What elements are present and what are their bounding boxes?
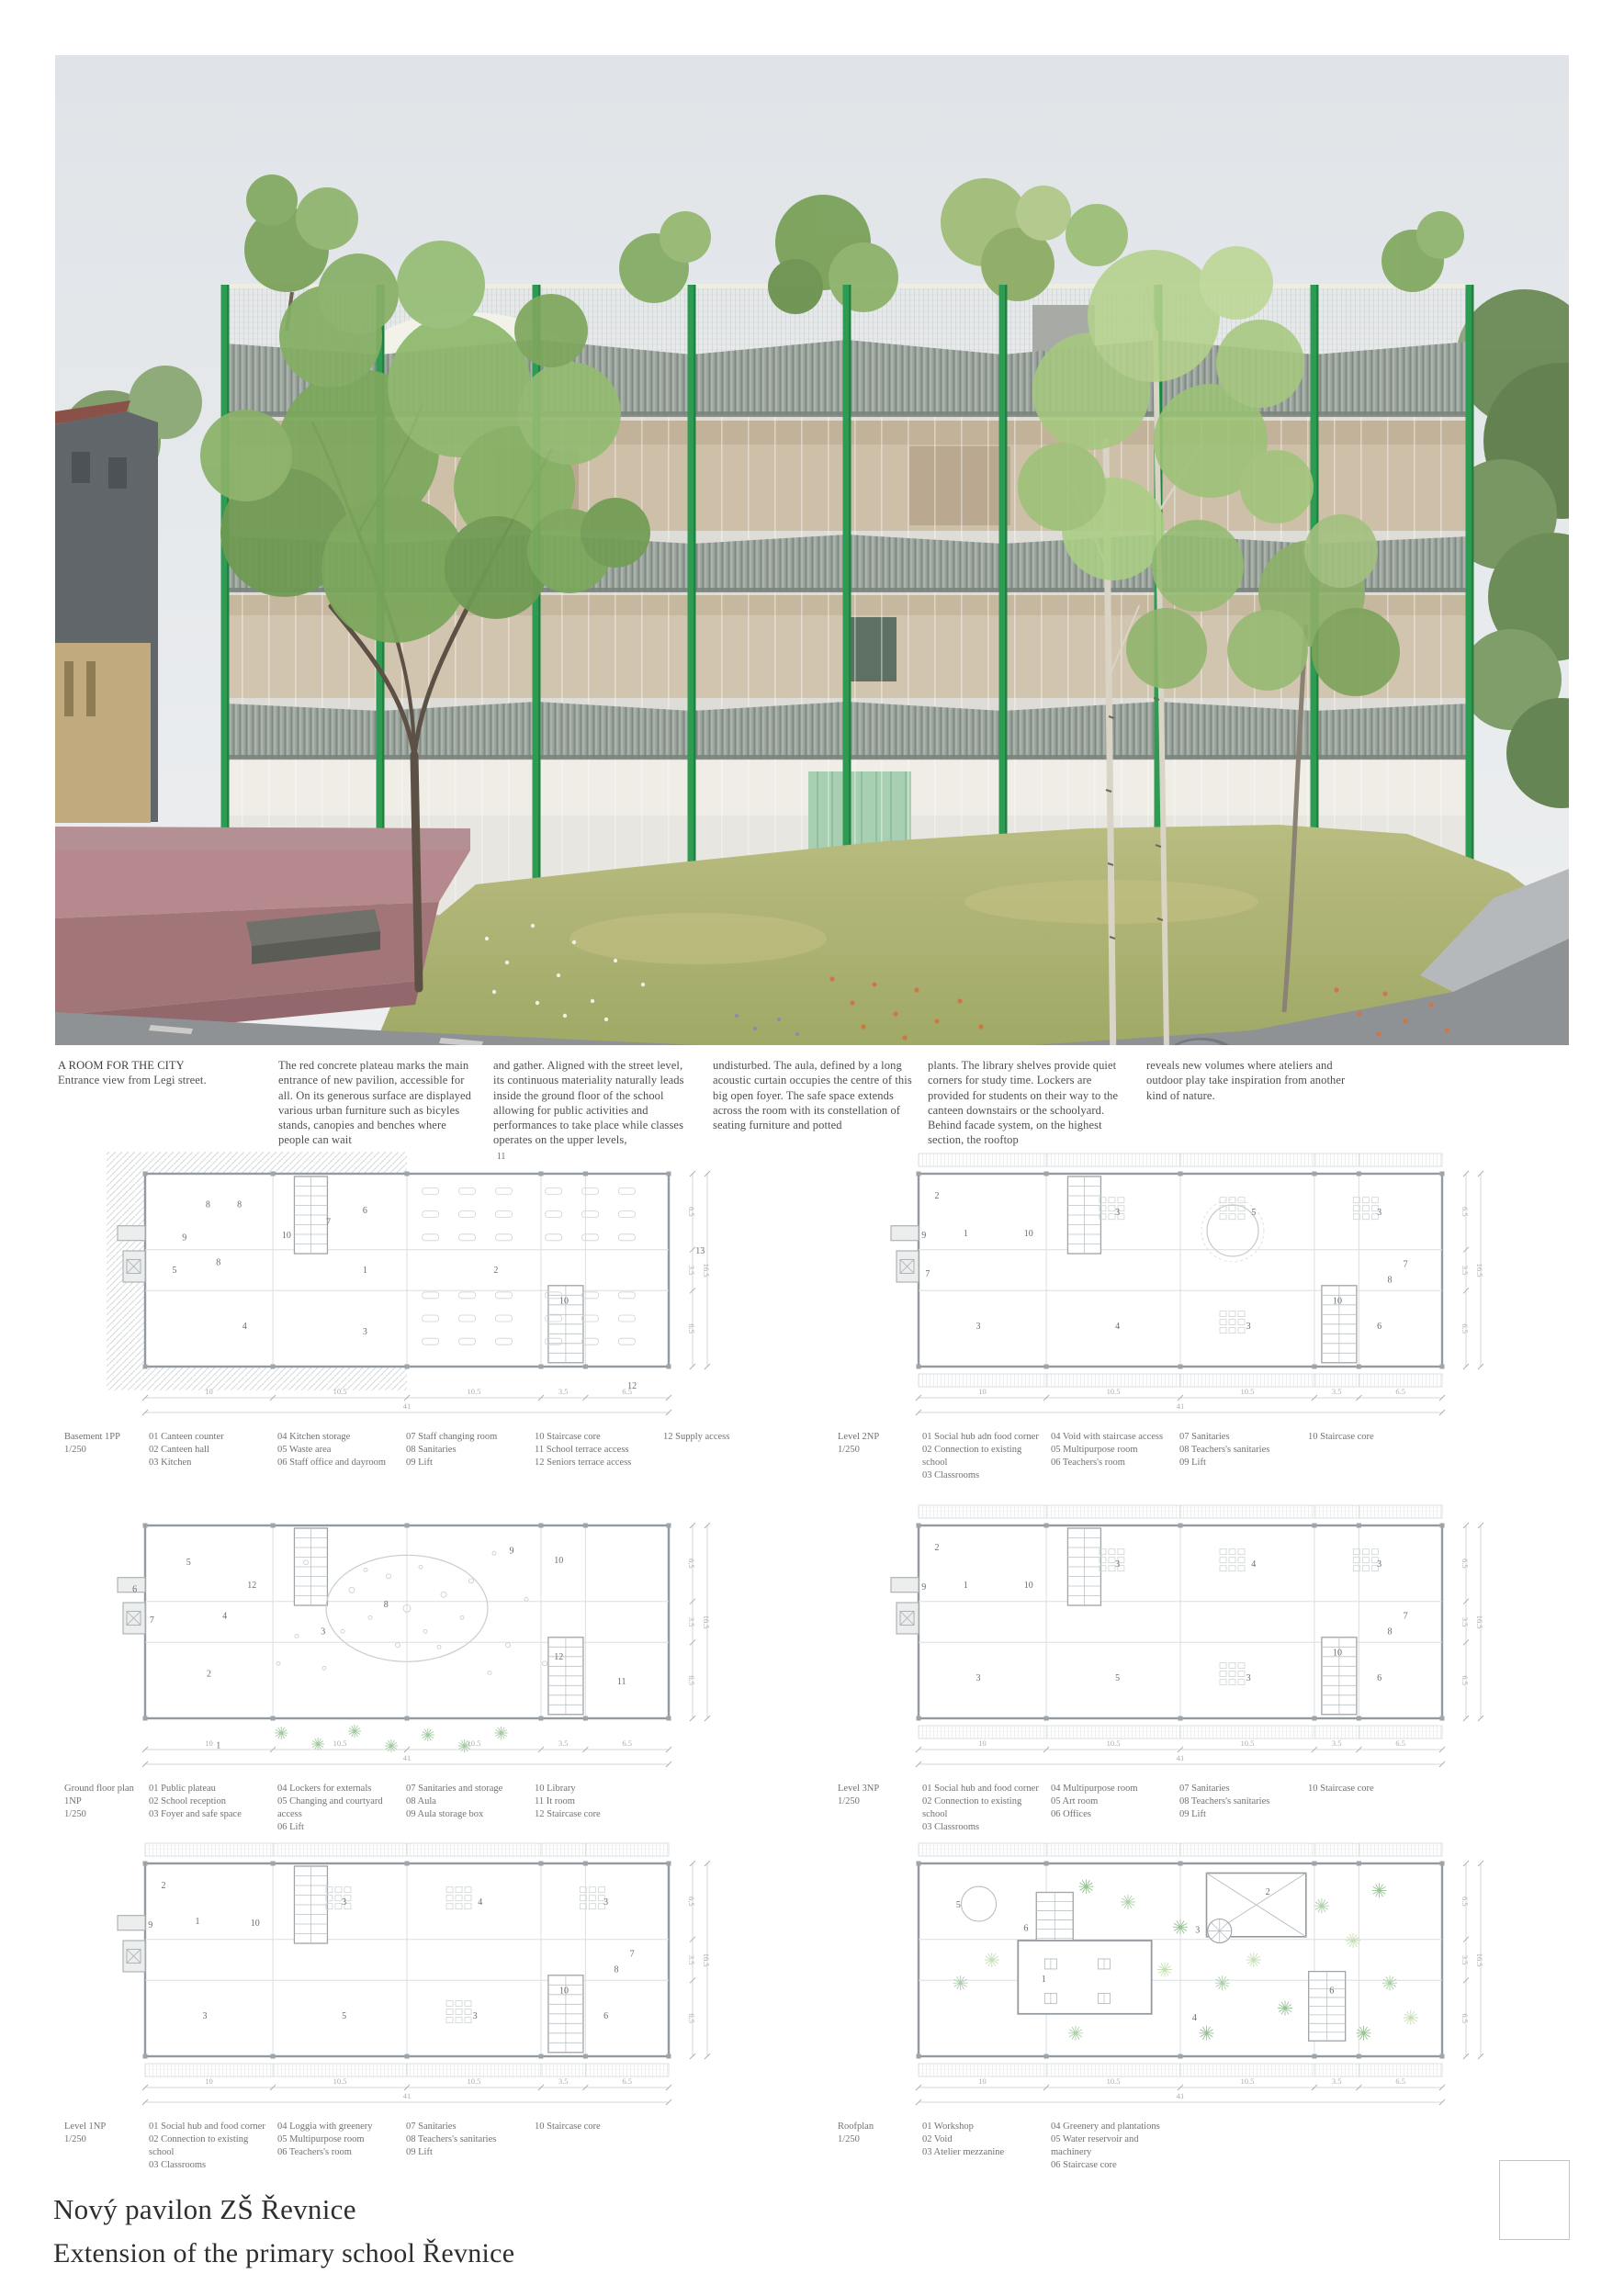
plan-legend: Basement 1PP 1/250 01 Canteen counter02 …: [64, 1431, 799, 1469]
svg-text:8: 8: [206, 1200, 210, 1210]
legend-column: 10 Library11 It room12 Staircase core: [535, 1783, 663, 1833]
legend-item: 08 Teachers's sanitaries: [406, 2133, 529, 2146]
svg-text:10: 10: [1024, 1581, 1033, 1591]
svg-text:6: 6: [363, 1206, 367, 1216]
legend-column: 07 Sanitaries and storage08 Aula09 Aula …: [406, 1783, 535, 1833]
plan-scale: 1/250: [64, 1808, 149, 1821]
legend-column: 01 Canteen counter02 Canteen hall03 Kitc…: [149, 1431, 277, 1469]
svg-text:2: 2: [1266, 1887, 1270, 1897]
svg-text:10: 10: [205, 2077, 213, 2086]
svg-text:16.5: 16.5: [702, 1264, 711, 1277]
plan-label: Level 3NP: [838, 1783, 922, 1795]
legend-item: 12 Seniors terrace access: [535, 1457, 658, 1469]
plan-scale: 1/250: [64, 1444, 149, 1457]
svg-text:4: 4: [1115, 1322, 1120, 1332]
floor-plan-drawing: 1010.510.53.56.5416.53.56.516.5567124238…: [64, 1503, 799, 1775]
svg-text:10: 10: [205, 1739, 213, 1748]
svg-text:6.5: 6.5: [687, 1896, 696, 1907]
plan-legend: Roofplan 1/250 01 Workshop02 Void03 Atel…: [838, 2121, 1573, 2171]
existing-building: [55, 400, 158, 823]
svg-text:9: 9: [148, 1920, 152, 1930]
svg-text:6: 6: [1377, 1322, 1382, 1332]
svg-text:4: 4: [242, 1322, 247, 1332]
legend-item: 06 Teachers's room: [1051, 1457, 1174, 1469]
svg-text:41: 41: [403, 2091, 412, 2100]
svg-text:12: 12: [247, 1581, 256, 1591]
legend-item: 03 Foyer and safe space: [149, 1808, 272, 1821]
svg-text:2: 2: [493, 1266, 498, 1276]
svg-text:10.5: 10.5: [333, 2077, 347, 2086]
legend-item: 05 Waste area: [277, 1444, 400, 1457]
svg-text:2: 2: [207, 1670, 211, 1680]
svg-text:10.5: 10.5: [468, 2077, 481, 2086]
svg-text:6.5: 6.5: [622, 1739, 632, 1748]
svg-text:10: 10: [1333, 1649, 1342, 1659]
svg-text:6: 6: [1023, 1923, 1028, 1933]
caption-paragraph-1: The red concrete plateau marks the main …: [278, 1058, 479, 1148]
plan-level-1np: 1010.510.53.56.5416.53.56.516.5219103437…: [64, 1841, 799, 2171]
svg-text:1: 1: [964, 1581, 968, 1591]
svg-text:5: 5: [1251, 1208, 1256, 1218]
svg-text:3.5: 3.5: [1332, 1387, 1342, 1396]
floor-plan-drawing: 1010.510.53.56.5416.53.56.516.55612346: [838, 1841, 1573, 2113]
svg-text:3.5: 3.5: [687, 1617, 696, 1627]
legend-item: 06 Staircase core: [1051, 2159, 1174, 2172]
svg-text:5: 5: [342, 2011, 346, 2021]
svg-text:41: 41: [1177, 1401, 1185, 1411]
legend-item: 05 Multipurpose room: [1051, 1444, 1174, 1457]
legend-item: 06 Teachers's room: [277, 2146, 400, 2159]
svg-text:6.5: 6.5: [1460, 2013, 1470, 2023]
svg-text:3.5: 3.5: [1460, 1617, 1470, 1627]
svg-text:2: 2: [161, 1881, 165, 1891]
legend-item: 10 Library: [535, 1783, 658, 1795]
legend-item: 08 Sanitaries: [406, 1444, 529, 1457]
svg-text:6.5: 6.5: [1460, 1896, 1470, 1907]
legend-item: 02 Connection to existing school: [149, 2133, 272, 2159]
svg-text:10: 10: [559, 1297, 569, 1307]
plan-label: Basement 1PP: [64, 1431, 149, 1444]
svg-text:3.5: 3.5: [558, 1387, 569, 1396]
legend-item: 01 Canteen counter: [149, 1431, 272, 1444]
svg-text:3: 3: [363, 1327, 367, 1337]
svg-text:6.5: 6.5: [1395, 2077, 1405, 2086]
plan-scale: 1/250: [838, 1795, 922, 1808]
plan-scale: 1/250: [64, 2133, 149, 2146]
legend-item: 06 Lift: [277, 1821, 400, 1834]
legend-column: 01 Social hub and food corner02 Connecti…: [922, 1783, 1051, 1833]
legend-item: 07 Sanitaries: [1179, 1431, 1303, 1444]
legend-item: 02 School reception: [149, 1795, 272, 1808]
svg-text:8: 8: [1388, 1276, 1393, 1286]
svg-text:10.5: 10.5: [468, 1739, 481, 1748]
caption-paragraph-4: plants. The library shelves provide quie…: [928, 1058, 1128, 1148]
legend-item: 03 Classrooms: [149, 2159, 272, 2172]
svg-text:3: 3: [1115, 1559, 1120, 1570]
legend-item: 04 Loggia with greenery: [277, 2121, 400, 2133]
svg-text:4: 4: [1192, 2013, 1197, 2023]
legend-item: 12 Supply access: [663, 1431, 786, 1444]
legend-item: 06 Staff office and dayroom: [277, 1457, 400, 1469]
project-title-english: Extension of the primary school Řevnice: [53, 2238, 514, 2269]
legend-item: 01 Social hub and food corner: [922, 1783, 1045, 1795]
svg-text:10.5: 10.5: [1107, 2077, 1121, 2086]
svg-text:4: 4: [1251, 1559, 1256, 1570]
plan-level-3np: 1010.510.53.56.5416.53.56.516.5219103437…: [838, 1503, 1573, 1833]
legend-item: 01 Workshop: [922, 2121, 1045, 2133]
legend-item: 01 Social hub adn food corner: [922, 1431, 1045, 1444]
legend-item: 04 Kitchen storage: [277, 1431, 400, 1444]
svg-text:6.5: 6.5: [1395, 1739, 1405, 1748]
svg-text:7: 7: [925, 1269, 930, 1279]
legend-item: 10 Staircase core: [1308, 1783, 1431, 1795]
legend-column: 07 Staff changing room08 Sanitaries09 Li…: [406, 1431, 535, 1469]
plan-label: Ground floor plan 1NP: [64, 1783, 149, 1808]
svg-text:9: 9: [921, 1582, 926, 1593]
legend-item: 11 It room: [535, 1795, 658, 1808]
svg-text:10.5: 10.5: [333, 1739, 347, 1748]
svg-text:3: 3: [1246, 1673, 1251, 1683]
legend-column: 01 Social hub and food corner02 Connecti…: [149, 2121, 277, 2171]
svg-text:16.5: 16.5: [702, 1953, 711, 1967]
svg-text:13: 13: [695, 1246, 705, 1256]
svg-text:6.5: 6.5: [1460, 1675, 1470, 1685]
svg-text:6.5: 6.5: [687, 1207, 696, 1217]
svg-text:6: 6: [603, 2011, 608, 2021]
svg-text:41: 41: [1177, 1753, 1185, 1762]
legend-item: 03 Classrooms: [922, 1821, 1045, 1834]
caption-title: A ROOM FOR THE CITY: [58, 1058, 258, 1073]
plan-scale: 1/250: [838, 1444, 922, 1457]
svg-text:16.5: 16.5: [702, 1615, 711, 1629]
svg-text:6.5: 6.5: [687, 1675, 696, 1685]
legend-item: 03 Kitchen: [149, 1457, 272, 1469]
plan-scale: 1/250: [838, 2133, 922, 2146]
svg-text:3.5: 3.5: [558, 1739, 569, 1748]
svg-text:7: 7: [150, 1615, 154, 1626]
svg-text:7: 7: [1404, 1612, 1408, 1622]
svg-text:41: 41: [403, 1753, 412, 1762]
entrance-render: [55, 55, 1569, 1045]
legend-column: 07 Sanitaries08 Teachers's sanitaries09 …: [406, 2121, 535, 2171]
legend-item: 04 Multipurpose room: [1051, 1783, 1174, 1795]
legend-item: 10 Staircase core: [535, 2121, 658, 2133]
legend-item: 04 Void with staircase access: [1051, 1431, 1174, 1444]
plan-label: Level 1NP: [64, 2121, 149, 2133]
plan-legend: Ground floor plan 1NP 1/250 01 Public pl…: [64, 1783, 799, 1833]
svg-text:1: 1: [1042, 1975, 1046, 1985]
legend-column: 01 Workshop02 Void03 Atelier mezzanine: [922, 2121, 1051, 2171]
legend-item: 09 Lift: [406, 2146, 529, 2159]
svg-text:2: 2: [934, 1543, 939, 1553]
svg-text:2: 2: [934, 1191, 939, 1201]
plan-level-2np: 1010.510.53.56.5416.53.56.516.5219103537…: [838, 1152, 1573, 1481]
legend-item: 05 Water reservoir and machinery: [1051, 2133, 1174, 2159]
legend-item: 02 Connection to existing school: [922, 1444, 1045, 1469]
legend-item: 04 Greenery and plantations: [1051, 2121, 1174, 2133]
svg-text:9: 9: [921, 1231, 926, 1241]
plan-label: Roofplan: [838, 2121, 922, 2133]
legend-column: 01 Public plateau02 School reception03 F…: [149, 1783, 277, 1833]
svg-text:5: 5: [172, 1266, 176, 1276]
svg-text:6: 6: [132, 1584, 137, 1594]
svg-text:6.5: 6.5: [1460, 1323, 1470, 1334]
presentation-board: A ROOM FOR THE CITY Entrance view from L…: [0, 0, 1624, 2296]
svg-text:9: 9: [182, 1232, 186, 1243]
legend-item: 07 Staff changing room: [406, 1431, 529, 1444]
svg-text:10: 10: [559, 1986, 569, 1997]
plan-legend: Level 2NP 1/250 01 Social hub adn food c…: [838, 1431, 1573, 1481]
plan-basement-1pp: 1010.510.53.56.5416.53.56.516.5881076958…: [64, 1152, 799, 1469]
plan-ground-floor-1np: 1010.510.53.56.5416.53.56.516.5567124238…: [64, 1503, 799, 1833]
svg-text:12: 12: [554, 1652, 563, 1662]
svg-text:10: 10: [978, 2077, 987, 2086]
legend-column: 10 Staircase core: [1308, 1783, 1437, 1833]
svg-text:3: 3: [473, 2011, 478, 2021]
svg-text:3.5: 3.5: [687, 1266, 696, 1276]
svg-text:3: 3: [321, 1627, 325, 1638]
caption-paragraph-5: reveals new volumes where ateliers and o…: [1146, 1058, 1347, 1103]
svg-text:16.5: 16.5: [1475, 1615, 1484, 1629]
svg-text:9: 9: [510, 1546, 514, 1556]
legend-item: 05 Multipurpose room: [277, 2133, 400, 2146]
svg-text:3: 3: [1195, 1926, 1200, 1936]
svg-text:3: 3: [202, 2011, 207, 2021]
floor-plan-drawing: 1010.510.53.56.5416.53.56.516.5219103437…: [64, 1841, 799, 2113]
svg-text:10: 10: [251, 1919, 260, 1929]
svg-text:7: 7: [630, 1950, 635, 1960]
floor-plan-drawing: 1010.510.53.56.5416.53.56.516.5219103537…: [838, 1152, 1573, 1424]
svg-text:6.5: 6.5: [687, 1559, 696, 1569]
svg-text:10: 10: [205, 1387, 213, 1396]
legend-column: 10 Staircase core: [535, 2121, 663, 2171]
legend-item: 02 Canteen hall: [149, 1444, 272, 1457]
svg-text:3: 3: [603, 1897, 608, 1908]
caption-paragraph-2: and gather. Aligned with the street leve…: [493, 1058, 694, 1148]
entrance-render-graphic: [55, 55, 1569, 1045]
svg-text:7: 7: [1404, 1260, 1408, 1270]
svg-text:10.5: 10.5: [1241, 1387, 1255, 1396]
svg-text:10: 10: [282, 1231, 291, 1241]
svg-text:5: 5: [956, 1900, 961, 1910]
legend-item: 02 Connection to existing school: [922, 1795, 1045, 1821]
legend-column: 01 Social hub adn food corner02 Connecti…: [922, 1431, 1051, 1481]
svg-text:3.5: 3.5: [1332, 1739, 1342, 1748]
legend-item: 12 Staircase core: [535, 1808, 658, 1821]
svg-text:1: 1: [964, 1229, 968, 1239]
svg-text:10.5: 10.5: [333, 1387, 347, 1396]
svg-text:10.5: 10.5: [1107, 1739, 1121, 1748]
svg-text:7: 7: [326, 1218, 331, 1228]
svg-text:10.5: 10.5: [1241, 2077, 1255, 2086]
svg-text:11: 11: [617, 1677, 626, 1687]
svg-text:10.5: 10.5: [1241, 1739, 1255, 1748]
svg-text:3: 3: [976, 1322, 980, 1332]
legend-column: 04 Lockers for externals05 Changing and …: [277, 1783, 406, 1833]
svg-text:1: 1: [363, 1266, 367, 1276]
legend-item: 07 Sanitaries: [406, 2121, 529, 2133]
legend-column: 04 Greenery and plantations05 Water rese…: [1051, 2121, 1179, 2171]
floor-plan-drawing: 1010.510.53.56.5416.53.56.516.5881076958…: [64, 1152, 799, 1424]
legend-column: 04 Void with staircase access05 Multipur…: [1051, 1431, 1179, 1481]
svg-text:3.5: 3.5: [1460, 1266, 1470, 1276]
svg-text:6.5: 6.5: [687, 1323, 696, 1334]
legend-item: 09 Lift: [1179, 1808, 1303, 1821]
legend-item: 07 Sanitaries and storage: [406, 1783, 529, 1795]
svg-text:10: 10: [978, 1739, 987, 1748]
svg-text:10: 10: [978, 1387, 987, 1396]
svg-text:4: 4: [478, 1897, 482, 1908]
legend-item: 04 Lockers for externals: [277, 1783, 400, 1795]
legend-column: 04 Multipurpose room05 Art room06 Office…: [1051, 1783, 1179, 1833]
svg-text:3: 3: [1115, 1208, 1120, 1218]
caption-subtitle: Entrance view from Legi street.: [58, 1073, 258, 1087]
svg-text:8: 8: [1388, 1627, 1393, 1638]
legend-item: 05 Art room: [1051, 1795, 1174, 1808]
legend-item: 08 Aula: [406, 1795, 529, 1808]
svg-text:3.5: 3.5: [1332, 2077, 1342, 2086]
legend-item: 01 Public plateau: [149, 1783, 272, 1795]
legend-item: 05 Changing and courtyard access: [277, 1795, 400, 1821]
legend-item: 08 Teachers's sanitaries: [1179, 1444, 1303, 1457]
svg-text:3.5: 3.5: [1460, 1955, 1470, 1965]
svg-text:3: 3: [1377, 1208, 1382, 1218]
svg-text:3: 3: [976, 1673, 980, 1683]
legend-item: 03 Atelier mezzanine: [922, 2146, 1045, 2159]
legend-column: 07 Sanitaries08 Teachers's sanitaries09 …: [1179, 1431, 1308, 1481]
legend-item: 01 Social hub and food corner: [149, 2121, 272, 2133]
svg-text:10.5: 10.5: [1107, 1387, 1121, 1396]
svg-text:3.5: 3.5: [687, 1955, 696, 1965]
legend-column: 07 Sanitaries08 Teachers's sanitaries09 …: [1179, 1783, 1308, 1833]
legend-item: 06 Offices: [1051, 1808, 1174, 1821]
svg-text:10: 10: [554, 1556, 563, 1566]
svg-text:6.5: 6.5: [687, 2013, 696, 2023]
legend-item: 07 Sanitaries: [1179, 1783, 1303, 1795]
plan-label: Level 2NP: [838, 1431, 922, 1444]
legend-column: 12 Supply access: [663, 1431, 792, 1469]
floor-plan-drawing: 1010.510.53.56.5416.53.56.516.5219103437…: [838, 1503, 1573, 1775]
legend-item: 09 Aula storage box: [406, 1808, 529, 1821]
svg-text:8: 8: [216, 1258, 220, 1268]
svg-text:1: 1: [196, 1917, 200, 1927]
svg-text:3.5: 3.5: [558, 2077, 569, 2086]
svg-text:8: 8: [384, 1600, 389, 1610]
svg-text:12: 12: [627, 1381, 637, 1391]
legend-item: 03 Classrooms: [922, 1469, 1045, 1482]
svg-text:8: 8: [237, 1200, 242, 1210]
legend-column: 04 Loggia with greenery05 Multipurpose r…: [277, 2121, 406, 2171]
svg-text:8: 8: [615, 1965, 619, 1975]
plan-roofplan: 1010.510.53.56.5416.53.56.516.55612346 R…: [838, 1841, 1573, 2171]
svg-text:6.5: 6.5: [1460, 1559, 1470, 1569]
svg-text:41: 41: [403, 1401, 412, 1411]
legend-item: 09 Lift: [1179, 1457, 1303, 1469]
svg-text:6.5: 6.5: [622, 2077, 632, 2086]
plan-legend: Level 1NP 1/250 01 Social hub and food c…: [64, 2121, 799, 2171]
svg-text:5: 5: [1115, 1673, 1120, 1683]
svg-text:5: 5: [186, 1558, 191, 1568]
svg-text:4: 4: [222, 1612, 227, 1622]
legend-item: 10 Staircase core: [1308, 1431, 1431, 1444]
caption-paragraph-3: undisturbed. The aula, defined by a long…: [713, 1058, 913, 1132]
svg-text:10: 10: [1333, 1297, 1342, 1307]
svg-text:16.5: 16.5: [1475, 1264, 1484, 1277]
legend-item: 09 Lift: [406, 1457, 529, 1469]
logo-placeholder-box: [1499, 2160, 1570, 2240]
svg-text:6: 6: [1329, 1986, 1334, 1997]
legend-column: 10 Staircase core11 School terrace acces…: [535, 1431, 663, 1469]
legend-column: 10 Staircase core: [1308, 1431, 1437, 1481]
project-title-czech: Nový pavilon ZŠ Řevnice: [53, 2193, 356, 2226]
svg-text:6: 6: [1377, 1673, 1382, 1683]
svg-text:3: 3: [1377, 1559, 1382, 1570]
svg-text:1: 1: [216, 1740, 220, 1750]
svg-text:3: 3: [342, 1897, 346, 1908]
legend-item: 10 Staircase core: [535, 1431, 658, 1444]
legend-item: 02 Void: [922, 2133, 1045, 2146]
legend-item: 08 Teachers's sanitaries: [1179, 1795, 1303, 1808]
svg-text:6.5: 6.5: [1460, 1207, 1470, 1217]
svg-text:3: 3: [1246, 1322, 1251, 1332]
legend-item: 11 School terrace access: [535, 1444, 658, 1457]
svg-text:41: 41: [1177, 2091, 1185, 2100]
svg-text:10: 10: [1024, 1229, 1033, 1239]
svg-text:16.5: 16.5: [1475, 1953, 1484, 1967]
legend-column: 04 Kitchen storage05 Waste area06 Staff …: [277, 1431, 406, 1469]
svg-text:10.5: 10.5: [468, 1387, 481, 1396]
caption-title-block: A ROOM FOR THE CITY Entrance view from L…: [58, 1058, 258, 1088]
svg-text:11: 11: [497, 1152, 506, 1162]
plan-legend: Level 3NP 1/250 01 Social hub and food c…: [838, 1783, 1573, 1833]
svg-text:6.5: 6.5: [1395, 1387, 1405, 1396]
